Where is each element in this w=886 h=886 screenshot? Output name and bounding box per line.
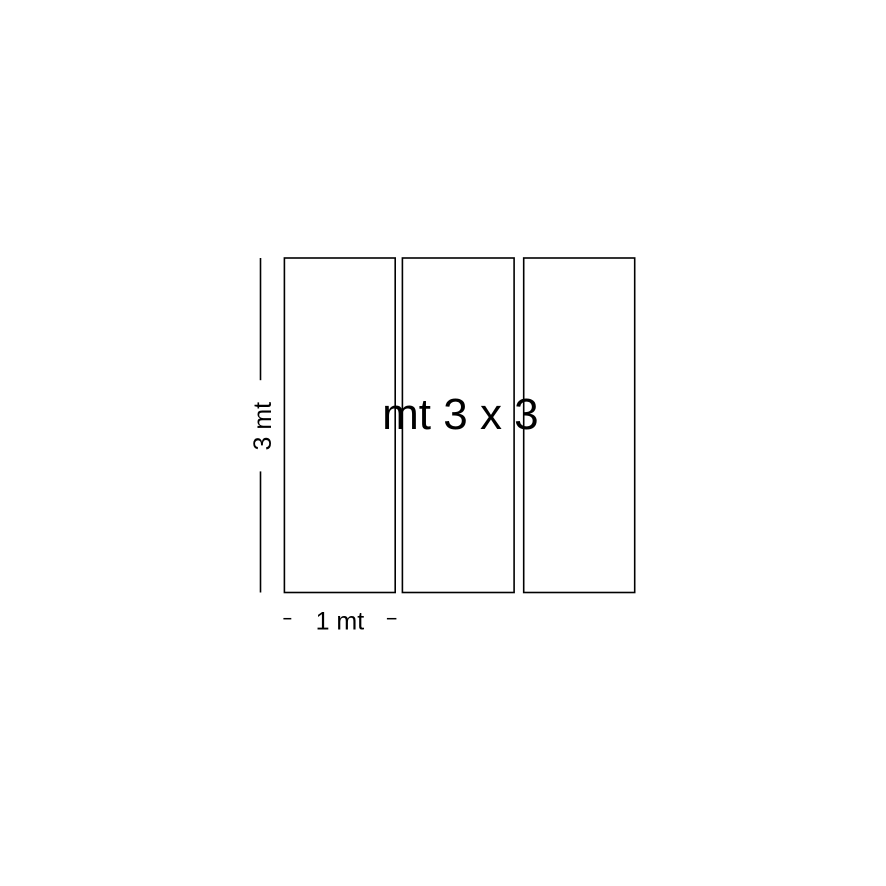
svg-text:mt 3 x 3: mt 3 x 3 <box>382 390 539 439</box>
svg-text:3 mt: 3 mt <box>249 402 277 451</box>
svg-text:1 mt: 1 mt <box>316 607 365 635</box>
